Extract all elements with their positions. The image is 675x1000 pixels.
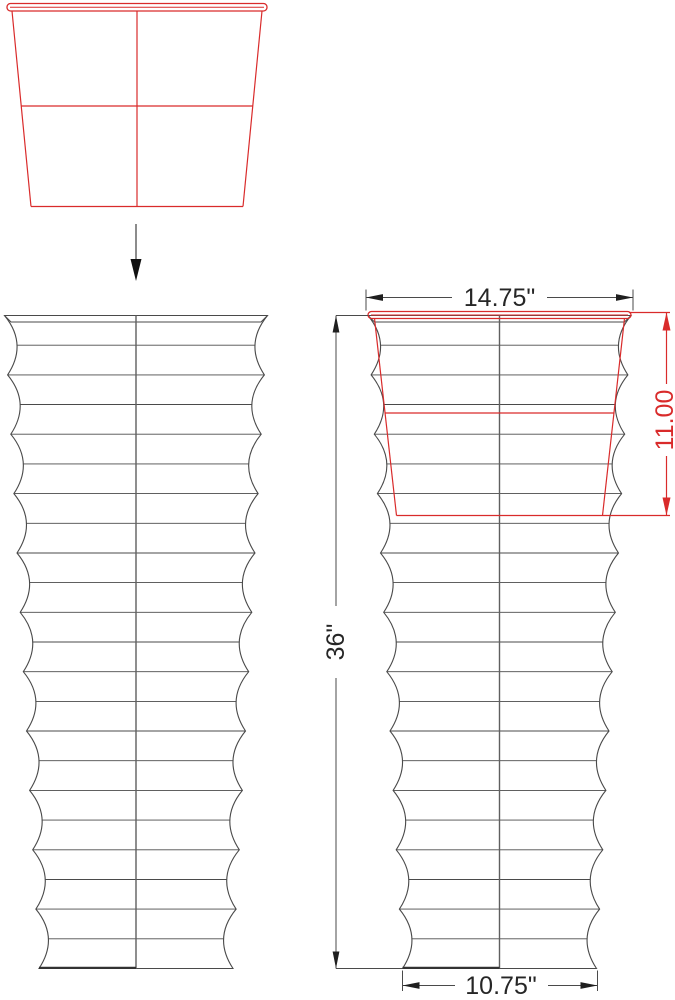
insert-overlay bbox=[368, 312, 670, 516]
flow-arrow bbox=[131, 224, 142, 281]
dim-insert-depth-label: 11.00 bbox=[651, 390, 675, 451]
insert-overlay-side-left bbox=[375, 319, 397, 516]
dim-top-width-label: 14.75" bbox=[464, 284, 535, 312]
dim-height-label: 36" bbox=[322, 624, 350, 661]
down-arrow-icon bbox=[131, 259, 142, 281]
red-dim-arrow-up-icon bbox=[663, 313, 671, 331]
insert-overlay-side-right bbox=[603, 319, 625, 516]
insert-side-right bbox=[243, 11, 262, 207]
dim-bottom-width-label: 10.75" bbox=[465, 972, 536, 1000]
insert-side-left bbox=[12, 11, 31, 207]
insert-top-view bbox=[7, 4, 267, 207]
planter-dimension-drawing: 14.75" 36" 11.00 10.75" bbox=[0, 0, 675, 1000]
dim-arrow-right-icon bbox=[581, 982, 598, 989]
dim-arrow-down-icon bbox=[333, 952, 340, 969]
dim-arrow-up-icon bbox=[333, 316, 340, 333]
dim-arrow-right-icon bbox=[616, 294, 633, 301]
dim-arrow-left-icon bbox=[403, 982, 420, 989]
drawing-canvas: 14.75" 36" 11.00 10.75" bbox=[0, 0, 675, 1000]
planter-front-view bbox=[5, 316, 268, 969]
dim-arrow-left-icon bbox=[366, 294, 383, 301]
red-dim-arrow-down-icon bbox=[663, 498, 671, 516]
